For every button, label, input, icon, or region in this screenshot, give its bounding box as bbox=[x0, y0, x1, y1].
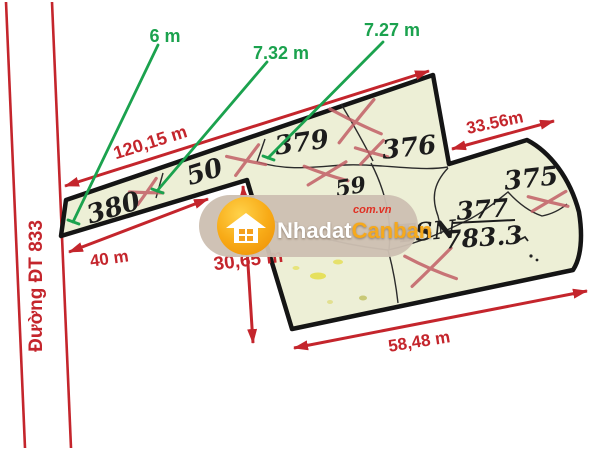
dimension-label-33m: 33.56m bbox=[465, 107, 525, 138]
watermark-domain-suffix: com.vn bbox=[353, 204, 392, 216]
road-edge-left bbox=[6, 2, 25, 448]
road-name-label: Đường ĐT 833 bbox=[26, 220, 47, 352]
dimension-label-58m: 58,48 m bbox=[387, 327, 452, 356]
dimension-label-120m: 120,15 m bbox=[111, 121, 190, 163]
watermark: NhadatCanban com.vn bbox=[199, 195, 432, 257]
land-plot-diagram: 380 50 379 376 59 375 TSN 377 783.3 120,… bbox=[0, 0, 600, 450]
green-label-7-27m: 7.27 m bbox=[364, 20, 420, 40]
watermark-brand-orange: Canban bbox=[352, 218, 433, 243]
plot-label-375: 375 bbox=[503, 161, 560, 197]
green-label-7-32m: 7.32 m bbox=[253, 43, 309, 63]
land-plot-sketch: 380 50 379 376 59 375 TSN 377 783.3 120,… bbox=[0, 0, 600, 450]
watermark-brand-white: Nhadat bbox=[277, 218, 352, 243]
green-measure-labels: 6 m 7.32 m 7.27 m bbox=[149, 20, 420, 63]
green-label-6m: 6 m bbox=[149, 26, 180, 46]
dimension-label-40m: 40 m bbox=[89, 246, 130, 270]
watermark-brand-text: NhadatCanban bbox=[277, 218, 432, 243]
plot-label-783-denominator: 783.3 bbox=[443, 220, 523, 254]
plot-label-376: 376 bbox=[381, 130, 438, 166]
